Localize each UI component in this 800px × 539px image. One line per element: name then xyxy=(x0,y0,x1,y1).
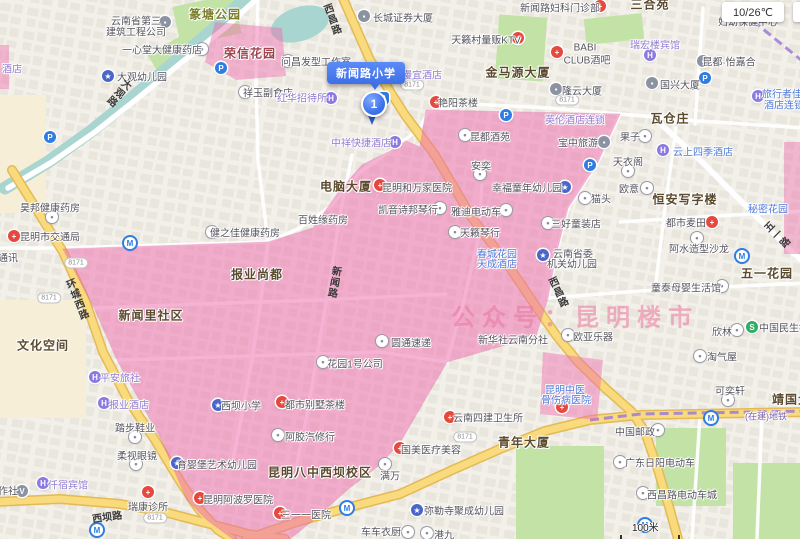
map-poi-label[interactable]: 欣林 xyxy=(712,324,732,339)
map-poi-label[interactable]: 百姓缘药房 xyxy=(298,212,348,227)
map-poi-label[interactable]: 作社 xyxy=(0,483,18,498)
road-number-badge: 8171 xyxy=(64,258,88,269)
map-poi-label[interactable]: 都市别墅茶楼 xyxy=(285,397,345,412)
map-poi-label[interactable]: 一心堂大健康药店 xyxy=(122,42,202,57)
hospital-icon[interactable]: + xyxy=(706,216,718,228)
map-poi-label[interactable]: 英伦酒店连锁 xyxy=(545,112,605,127)
map-poi-label[interactable]: 童泰母婴生活馆 xyxy=(651,280,721,295)
building-icon[interactable]: ▪ xyxy=(358,10,370,22)
map-poi-label[interactable]: 阿水造型沙龙 xyxy=(669,241,729,256)
map-poi-label[interactable]: 瓦仓庄 xyxy=(650,110,689,127)
hospital-icon[interactable]: + xyxy=(551,46,563,58)
map-poi-label[interactable]: 车车衣厨 xyxy=(361,524,401,539)
map-poi-label[interactable]: CLUB酒吧 xyxy=(564,52,611,67)
map-poi-label[interactable]: 隆云大厦 xyxy=(562,83,602,98)
building-icon[interactable]: ▪ xyxy=(646,77,658,89)
map-poi-label[interactable]: 健之佳健康药房 xyxy=(210,225,280,240)
map-poi-label[interactable]: 酒店 xyxy=(2,61,22,76)
map-poi-label[interactable]: 天籁琴行 xyxy=(460,225,500,240)
map-poi-label[interactable]: 满万 xyxy=(380,468,400,483)
map-poi-label[interactable]: 育婴堡艺术幼儿园 xyxy=(177,457,257,472)
poi-dot-icon[interactable]: • xyxy=(272,429,284,441)
scale-bar xyxy=(620,535,680,539)
map-poi-label[interactable]: 柔视眼镜 xyxy=(117,448,157,463)
map-poi-label[interactable]: 篆塘公园 xyxy=(189,6,241,23)
map-poi-label[interactable]: 建筑工程公司 xyxy=(106,24,166,39)
metro-station-icon[interactable]: M xyxy=(124,237,136,249)
poi-dot-icon[interactable]: • xyxy=(402,526,414,538)
school-icon[interactable]: ★ xyxy=(102,70,114,82)
marker-balloon[interactable]: 新闻路小学 xyxy=(327,62,405,84)
map-poi-label[interactable]: 凯音诗邦琴行 xyxy=(378,202,438,217)
map-poi-label[interactable]: 国美医疗美容 xyxy=(401,442,461,457)
map-poi-label[interactable]: 昆明阿波罗医院 xyxy=(203,492,273,507)
map-poi-label[interactable]: 幸福童年幼儿园 xyxy=(492,180,562,195)
map-poi-label[interactable]: 猫头 xyxy=(591,191,611,206)
map-poi-label[interactable]: 淘气屋 xyxy=(707,349,737,364)
scale-control: 100米 xyxy=(620,519,680,539)
scale-label: 100米 xyxy=(632,519,680,534)
school-icon[interactable]: ★ xyxy=(411,504,423,516)
map-poi-label[interactable]: 天衣阁 xyxy=(613,154,643,169)
map-poi-label[interactable]: 金马源大厦 xyxy=(485,64,550,81)
map-poi-label[interactable]: 秘密花园 xyxy=(748,201,788,216)
map-poi-label[interactable]: 昆明市交通局 xyxy=(20,229,80,244)
map-poi-label[interactable]: 宝中旅游 xyxy=(558,135,598,150)
map-poi-label[interactable]: 机关幼儿园 xyxy=(547,256,597,271)
poi-dot-icon[interactable]: • xyxy=(421,527,433,539)
map-poi-label[interactable]: 通讯 xyxy=(0,250,18,265)
parking-icon[interactable]: P xyxy=(500,109,512,121)
map-poi-label[interactable]: 三好童装店 xyxy=(551,216,601,231)
poi-dot-icon[interactable]: • xyxy=(579,192,591,204)
map-poi-label[interactable]: 欧亚乐器 xyxy=(573,329,613,344)
map-poi-label[interactable]: 弥勒寺聚成幼儿园 xyxy=(424,503,504,518)
map-poi-label[interactable]: 艳阳茶楼 xyxy=(438,95,478,110)
map-poi-label[interactable]: 昆明八中西坝校区 xyxy=(268,464,372,481)
map-poi-label[interactable]: 酒店连锁 xyxy=(764,97,800,112)
map-poi-label[interactable]: 新华社云南分社 xyxy=(478,332,548,347)
map-poi-label[interactable]: 云上四季酒店 xyxy=(673,144,733,159)
poi-dot-icon[interactable]: • xyxy=(731,324,743,336)
map-poi-label[interactable]: 阿胶汽修行 xyxy=(285,429,335,444)
metro-station-icon[interactable]: M xyxy=(705,412,717,424)
map-poi-label[interactable]: 昆都酒苑 xyxy=(470,129,510,144)
map-poi-label[interactable]: 安奕 xyxy=(471,158,491,173)
map-poi-label[interactable]: 电脑大厦 xyxy=(320,178,372,195)
map-poi-label[interactable]: 西坝小学 xyxy=(221,398,261,413)
map-poi-label[interactable]: 果子 xyxy=(620,129,640,144)
map-poi-label[interactable]: 新闻路妇科门诊部 xyxy=(520,0,600,15)
map-poi-label[interactable]: 报业尚都 xyxy=(231,266,283,283)
map-poi-label[interactable]: 长城证券大厦 xyxy=(373,10,433,25)
map-poi-label[interactable]: 都市麦田 xyxy=(666,215,706,230)
bank-icon[interactable]: S xyxy=(746,321,758,333)
marker-pin[interactable]: 1 xyxy=(361,91,387,117)
map-poi-label[interactable]: 靖国大厦 xyxy=(772,391,800,408)
map-poi-label[interactable]: 花园1号公司 xyxy=(327,356,383,371)
metro-station-icon[interactable]: M xyxy=(341,502,353,514)
map-poi-label[interactable]: 云南四建卫生所 xyxy=(453,410,523,425)
map-poi-label[interactable]: 漫宜酒店 xyxy=(402,67,442,82)
map-poi-label[interactable]: 骨伤病医院 xyxy=(541,392,591,407)
map-poi-label[interactable]: 天成酒店 xyxy=(477,256,517,271)
map-poi-label[interactable]: 三一一医院 xyxy=(281,507,331,522)
map-poi-label[interactable]: 中祥快捷酒店 xyxy=(331,135,391,150)
map-poi-label[interactable]: (在建)地铁 xyxy=(745,410,787,423)
map-poi-label[interactable]: 平安旅社 xyxy=(100,370,140,385)
map-poi-label[interactable]: 报业酒店 xyxy=(109,397,149,412)
map-poi-label[interactable]: 三合苑 xyxy=(630,0,669,13)
weather-widget-edge xyxy=(793,2,800,22)
building-icon[interactable]: ▪ xyxy=(598,136,610,148)
parking-icon[interactable]: P xyxy=(699,72,711,84)
parking-icon[interactable]: P xyxy=(44,131,56,143)
poi-dot-icon[interactable]: • xyxy=(694,350,706,362)
map-poi-label[interactable]: 可奕轩 xyxy=(715,383,745,398)
map-poi-label[interactable]: 中国民生银行 xyxy=(759,320,800,335)
map-poi-label[interactable]: 昆明和万家医院 xyxy=(382,180,452,195)
building-icon[interactable]: ▪ xyxy=(550,83,562,95)
hotel-icon[interactable]: H xyxy=(657,144,669,156)
map-poi-label[interactable]: 文化空间 xyxy=(17,337,69,354)
map-poi-label[interactable]: 踏步鞋业 xyxy=(115,420,155,435)
map-poi-label[interactable]: 红华招待所 xyxy=(277,90,327,105)
map-poi-label[interactable]: 昊邦健康药房 xyxy=(20,200,80,215)
poi-dot-icon[interactable]: • xyxy=(639,130,651,142)
map-poi-label[interactable]: 昆都·怡嘉合 xyxy=(702,54,755,69)
map-poi-label[interactable]: 恒安写字楼 xyxy=(652,191,717,208)
poi-dot-icon[interactable]: • xyxy=(641,182,653,194)
map-poi-label[interactable]: 天籁村量贩KTV xyxy=(451,32,520,47)
map-poi-label[interactable]: 欧意 xyxy=(619,181,639,196)
hospital-icon[interactable]: + xyxy=(8,230,20,242)
hospital-icon[interactable]: + xyxy=(142,486,154,498)
parking-icon[interactable]: P xyxy=(215,62,227,74)
metro-station-icon[interactable]: M xyxy=(91,524,103,536)
map-poi-label[interactable]: 仟宿宾馆 xyxy=(48,477,88,492)
road-number-badge: 8171 xyxy=(143,513,167,524)
poi-dot-icon[interactable]: • xyxy=(500,204,512,216)
metro-station-icon[interactable]: M xyxy=(736,250,748,262)
map-poi-label[interactable]: 国兴大厦 xyxy=(660,77,700,92)
map-poi-label[interactable]: 荣信花园 xyxy=(224,45,276,62)
parking-icon[interactable]: P xyxy=(584,159,596,171)
map-poi-label[interactable]: 港九 xyxy=(434,527,454,539)
map-poi-label[interactable]: 中国邮政 xyxy=(615,424,655,439)
watermark: 公众号：昆明楼市 xyxy=(451,298,699,333)
map-poi-label[interactable]: 五一花园 xyxy=(741,265,793,282)
map-poi-label[interactable]: 广东日阳电动车 xyxy=(625,455,695,470)
road-number-badge: 8171 xyxy=(37,293,61,304)
map-poi-label[interactable]: 圆通速递 xyxy=(391,335,431,350)
map-poi-label[interactable]: 雅迪电动车 xyxy=(451,204,501,219)
weather-widget: 10/26℃ xyxy=(722,2,784,22)
map-poi-label[interactable]: 新闻里社区 xyxy=(118,307,183,324)
map-poi-label[interactable]: 青年大厦 xyxy=(498,434,550,451)
poi-dot-icon[interactable]: • xyxy=(376,335,388,347)
map-poi-label[interactable]: 瑞宏楼宾馆 xyxy=(630,37,680,52)
map-poi-label[interactable]: 西昌路电动车城 xyxy=(647,487,717,502)
map-poi-label[interactable]: 瑞康诊所 xyxy=(128,499,168,514)
map-canvas[interactable]: 公众号：昆明楼市 新闻路小学 1 10/26℃ 100米 篆塘公园荣信花园三合苑… xyxy=(0,0,800,539)
